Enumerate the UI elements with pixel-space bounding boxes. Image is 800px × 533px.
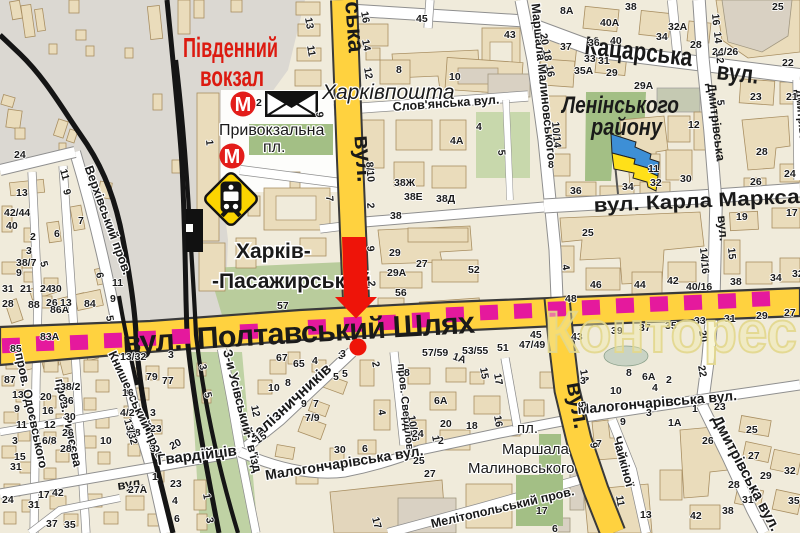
svg-text:88: 88 xyxy=(28,299,40,311)
svg-text:вул.: вул. xyxy=(715,215,731,242)
svg-text:38Е: 38Е xyxy=(404,191,423,203)
svg-text:33: 33 xyxy=(584,53,596,65)
svg-text:13/32: 13/32 xyxy=(120,351,146,363)
svg-text:32: 32 xyxy=(784,465,796,477)
svg-text:24: 24 xyxy=(40,283,52,295)
svg-text:35: 35 xyxy=(788,495,800,507)
svg-text:31: 31 xyxy=(598,55,610,67)
svg-text:10: 10 xyxy=(268,382,280,394)
svg-text:2: 2 xyxy=(364,202,376,209)
svg-text:34: 34 xyxy=(770,272,782,284)
svg-text:пл.: пл. xyxy=(517,420,538,437)
svg-text:17: 17 xyxy=(491,372,505,386)
svg-text:23: 23 xyxy=(150,423,162,435)
svg-text:7: 7 xyxy=(323,195,335,202)
svg-text:Привокзальна: Привокзальна xyxy=(219,122,324,139)
svg-text:28: 28 xyxy=(60,443,72,455)
svg-text:6: 6 xyxy=(552,523,558,533)
svg-text:8А: 8А xyxy=(560,5,574,17)
svg-text:11: 11 xyxy=(304,44,318,57)
svg-text:65: 65 xyxy=(293,358,305,370)
svg-text:29А: 29А xyxy=(387,267,407,279)
svg-text:35: 35 xyxy=(64,519,76,531)
svg-text:38Д: 38Д xyxy=(436,193,456,205)
svg-text:27А: 27А xyxy=(128,484,148,496)
svg-text:38: 38 xyxy=(730,276,742,288)
svg-text:26: 26 xyxy=(750,176,762,188)
svg-text:27: 27 xyxy=(424,468,436,480)
svg-text:25: 25 xyxy=(746,424,758,436)
svg-text:25: 25 xyxy=(413,455,425,467)
svg-text:13: 13 xyxy=(302,16,316,30)
svg-text:44: 44 xyxy=(634,279,646,291)
svg-text:5: 5 xyxy=(333,371,339,383)
svg-text:42: 42 xyxy=(667,275,679,287)
svg-text:77: 77 xyxy=(162,375,174,387)
svg-text:Харків-: Харків- xyxy=(236,240,311,263)
svg-text:12: 12 xyxy=(713,51,726,64)
svg-text:83А: 83А xyxy=(40,331,60,343)
svg-text:20: 20 xyxy=(440,418,452,430)
svg-text:30: 30 xyxy=(680,173,692,185)
svg-text:3: 3 xyxy=(340,348,346,360)
svg-text:52: 52 xyxy=(468,264,480,276)
svg-text:2: 2 xyxy=(256,97,262,109)
svg-text:16: 16 xyxy=(491,414,505,428)
svg-text:56: 56 xyxy=(395,287,407,299)
svg-text:2: 2 xyxy=(30,231,36,243)
svg-text:40/16: 40/16 xyxy=(686,281,712,293)
svg-text:14/16: 14/16 xyxy=(697,247,711,274)
svg-text:23: 23 xyxy=(170,478,182,490)
svg-text:28: 28 xyxy=(2,298,14,310)
svg-text:85: 85 xyxy=(10,343,22,355)
svg-text:27: 27 xyxy=(416,258,428,270)
svg-text:11: 11 xyxy=(648,163,659,175)
svg-text:87: 87 xyxy=(4,374,16,386)
svg-text:10: 10 xyxy=(100,435,112,447)
svg-text:Малиновського: Малиновського xyxy=(468,460,574,477)
svg-text:22: 22 xyxy=(695,364,709,378)
svg-text:29: 29 xyxy=(389,247,401,259)
svg-text:16: 16 xyxy=(358,10,372,24)
svg-text:7: 7 xyxy=(313,398,319,410)
svg-text:8: 8 xyxy=(396,64,402,76)
svg-text:8: 8 xyxy=(548,159,554,171)
svg-text:11: 11 xyxy=(613,494,627,507)
svg-text:1: 1 xyxy=(152,471,158,483)
svg-text:3: 3 xyxy=(26,245,32,257)
svg-text:6: 6 xyxy=(174,513,180,525)
svg-text:32А: 32А xyxy=(668,21,688,33)
svg-text:6/8: 6/8 xyxy=(42,435,57,447)
svg-text:13: 13 xyxy=(12,389,24,401)
svg-text:57: 57 xyxy=(277,300,289,312)
svg-text:6: 6 xyxy=(54,228,60,240)
svg-text:9: 9 xyxy=(301,398,307,410)
svg-text:1: 1 xyxy=(692,403,698,415)
svg-text:3: 3 xyxy=(12,435,18,447)
svg-text:8/10: 8/10 xyxy=(363,161,377,183)
svg-text:42: 42 xyxy=(52,487,64,499)
svg-text:45: 45 xyxy=(416,13,428,25)
svg-text:9: 9 xyxy=(110,293,116,305)
svg-text:34: 34 xyxy=(656,31,668,43)
svg-text:12: 12 xyxy=(361,66,375,80)
svg-text:25: 25 xyxy=(582,227,594,239)
svg-text:26: 26 xyxy=(62,427,74,439)
svg-text:18: 18 xyxy=(466,420,478,432)
svg-text:3: 3 xyxy=(646,407,652,419)
svg-text:35А: 35А xyxy=(574,65,594,77)
svg-text:31: 31 xyxy=(742,494,754,506)
svg-text:30: 30 xyxy=(334,444,346,456)
svg-text:10: 10 xyxy=(449,71,461,83)
svg-text:31: 31 xyxy=(10,461,22,473)
svg-text:29: 29 xyxy=(606,67,618,79)
svg-text:40А: 40А xyxy=(600,17,620,29)
svg-text:10/14: 10/14 xyxy=(549,121,563,148)
svg-text:4: 4 xyxy=(172,495,178,507)
svg-text:7: 7 xyxy=(78,215,84,227)
svg-text:26: 26 xyxy=(702,435,714,447)
svg-text:21: 21 xyxy=(20,283,32,295)
svg-text:28: 28 xyxy=(756,146,768,158)
svg-text:2: 2 xyxy=(365,280,377,287)
svg-text:12: 12 xyxy=(44,419,56,431)
svg-text:М: М xyxy=(224,146,241,168)
svg-text:13: 13 xyxy=(640,509,652,521)
svg-text:9: 9 xyxy=(364,245,376,252)
svg-text:Конторес: Конторес xyxy=(545,300,797,365)
svg-text:2: 2 xyxy=(666,374,672,386)
svg-text:4А: 4А xyxy=(450,135,464,147)
svg-text:42: 42 xyxy=(690,510,702,522)
svg-text:11: 11 xyxy=(16,419,27,431)
svg-text:9: 9 xyxy=(620,416,626,428)
svg-text:15: 15 xyxy=(725,247,738,260)
svg-text:19: 19 xyxy=(736,211,748,223)
svg-text:31: 31 xyxy=(2,283,14,295)
svg-text:Південний: Південний xyxy=(183,32,278,63)
svg-text:14: 14 xyxy=(359,38,373,52)
svg-text:67: 67 xyxy=(276,352,288,364)
svg-text:32: 32 xyxy=(650,177,662,189)
svg-text:43: 43 xyxy=(504,29,516,41)
svg-text:42/44: 42/44 xyxy=(4,207,30,219)
svg-text:4: 4 xyxy=(312,355,318,367)
svg-text:4: 4 xyxy=(476,121,482,133)
svg-text:23: 23 xyxy=(750,91,762,103)
svg-text:38Ж: 38Ж xyxy=(394,177,416,189)
svg-text:17: 17 xyxy=(536,505,548,517)
svg-text:37: 37 xyxy=(560,41,572,53)
svg-text:23: 23 xyxy=(714,401,726,413)
svg-text:11: 11 xyxy=(112,277,123,289)
svg-text:16: 16 xyxy=(709,13,722,26)
svg-text:3: 3 xyxy=(150,407,156,419)
svg-text:84: 84 xyxy=(84,298,96,310)
svg-text:5: 5 xyxy=(342,368,348,380)
svg-text:3: 3 xyxy=(168,349,174,361)
svg-text:8: 8 xyxy=(285,377,291,389)
svg-text:пл.: пл. xyxy=(263,139,285,156)
svg-text:37: 37 xyxy=(46,518,58,530)
svg-text:27: 27 xyxy=(748,450,760,462)
svg-text:79: 79 xyxy=(146,371,158,383)
svg-text:1: 1 xyxy=(203,139,215,146)
svg-text:21: 21 xyxy=(786,91,798,103)
svg-text:Харківпошта: Харківпошта xyxy=(321,81,455,104)
svg-text:16: 16 xyxy=(42,405,54,417)
svg-text:3: 3 xyxy=(150,443,156,455)
svg-text:5: 5 xyxy=(495,149,507,156)
svg-text:24: 24 xyxy=(14,149,26,161)
svg-text:14: 14 xyxy=(711,31,724,44)
svg-text:30: 30 xyxy=(50,283,62,295)
svg-text:9: 9 xyxy=(313,111,325,118)
svg-text:36: 36 xyxy=(62,395,74,407)
svg-text:28: 28 xyxy=(728,479,740,491)
svg-text:15: 15 xyxy=(477,366,491,380)
svg-text:10: 10 xyxy=(610,385,622,397)
svg-text:М: М xyxy=(235,94,252,116)
svg-text:34: 34 xyxy=(622,181,634,193)
svg-text:38: 38 xyxy=(625,1,637,13)
svg-text:30: 30 xyxy=(64,411,76,423)
svg-text:17: 17 xyxy=(786,207,798,219)
svg-text:31: 31 xyxy=(28,499,40,511)
svg-text:22: 22 xyxy=(782,57,794,69)
svg-text:46: 46 xyxy=(590,279,602,291)
svg-text:вокзал: вокзал xyxy=(200,61,264,92)
svg-text:5: 5 xyxy=(714,99,726,106)
svg-text:району: району xyxy=(590,114,663,141)
svg-text:9: 9 xyxy=(14,403,20,415)
svg-text:6А: 6А xyxy=(434,395,448,407)
svg-text:45: 45 xyxy=(530,329,542,341)
svg-text:38: 38 xyxy=(722,505,734,517)
svg-text:24: 24 xyxy=(2,494,14,506)
svg-text:38/2: 38/2 xyxy=(60,381,81,393)
svg-text:1А: 1А xyxy=(668,417,682,429)
svg-text:12: 12 xyxy=(688,119,700,131)
svg-text:17: 17 xyxy=(38,489,50,501)
svg-text:16: 16 xyxy=(122,387,134,399)
svg-text:7/9: 7/9 xyxy=(305,412,320,424)
svg-text:16: 16 xyxy=(543,64,557,78)
svg-text:13: 13 xyxy=(60,297,72,309)
svg-text:51: 51 xyxy=(497,342,509,354)
svg-text:4: 4 xyxy=(652,382,658,394)
svg-text:8: 8 xyxy=(626,367,632,379)
svg-text:6: 6 xyxy=(362,443,368,455)
svg-text:36: 36 xyxy=(570,185,582,197)
svg-text:29: 29 xyxy=(760,470,772,482)
svg-text:38: 38 xyxy=(390,210,402,222)
svg-text:3: 3 xyxy=(580,375,586,387)
svg-text:38/7: 38/7 xyxy=(16,257,37,269)
svg-text:40: 40 xyxy=(610,35,622,47)
svg-text:18: 18 xyxy=(540,48,554,62)
svg-text:29А: 29А xyxy=(634,80,654,92)
svg-text:20: 20 xyxy=(40,391,52,403)
svg-text:32: 32 xyxy=(792,268,800,280)
svg-text:36: 36 xyxy=(588,37,600,49)
svg-text:13: 13 xyxy=(16,187,28,199)
svg-text:40: 40 xyxy=(6,220,18,232)
svg-text:24: 24 xyxy=(784,168,796,180)
svg-text:25: 25 xyxy=(772,1,784,13)
svg-text:24: 24 xyxy=(412,428,424,440)
svg-text:28: 28 xyxy=(690,39,702,51)
svg-text:Маршала: Маршала xyxy=(502,441,569,458)
svg-text:20: 20 xyxy=(537,32,551,46)
svg-text:8: 8 xyxy=(404,367,410,379)
svg-text:57/59: 57/59 xyxy=(422,347,448,359)
